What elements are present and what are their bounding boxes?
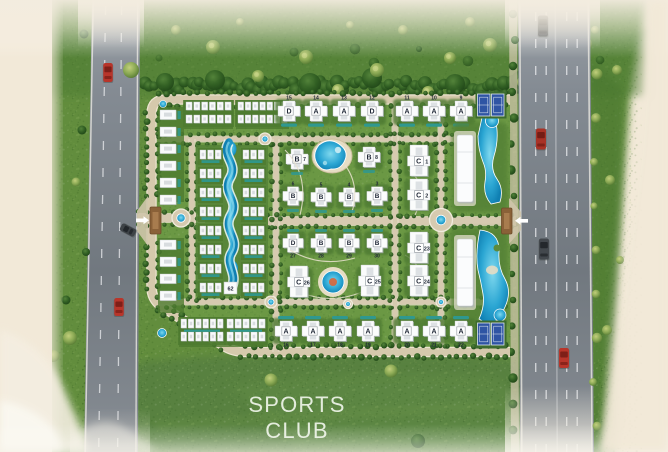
svg-text:11: 11 [404,96,410,102]
svg-text:B: B [347,240,352,247]
svg-text:9: 9 [460,96,463,102]
svg-text:B: B [375,240,380,247]
svg-text:A: A [341,108,346,115]
svg-text:1: 1 [425,159,428,165]
svg-text:5: 5 [320,182,323,188]
svg-text:A: A [365,328,370,335]
svg-text:A: A [337,328,342,335]
svg-text:2: 2 [425,193,428,199]
svg-text:A: A [458,108,463,115]
svg-text:A: A [404,108,409,115]
svg-text:D: D [291,240,296,247]
svg-text:6: 6 [292,181,295,187]
svg-text:26: 26 [304,280,310,286]
svg-text:C: C [367,279,372,286]
svg-text:25: 25 [375,279,381,285]
svg-text:C: C [416,159,421,166]
svg-text:19: 19 [365,343,371,349]
svg-text:21: 21 [431,343,437,349]
svg-text:A: A [283,328,288,335]
svg-text:C: C [296,280,301,287]
svg-text:62: 62 [227,287,233,293]
svg-text:C: C [416,279,421,286]
svg-text:22: 22 [458,343,464,349]
svg-text:A: A [404,328,409,335]
svg-text:D: D [369,108,374,115]
svg-text:24: 24 [424,279,431,285]
svg-text:8: 8 [375,155,378,161]
svg-text:C: C [416,193,421,200]
svg-text:B: B [319,240,324,247]
svg-text:B: B [347,194,352,201]
svg-text:A: A [310,328,315,335]
svg-text:B: B [366,154,371,161]
svg-text:17: 17 [310,343,316,349]
svg-text:A: A [458,328,463,335]
svg-text:A: A [431,108,436,115]
svg-text:B: B [291,193,296,200]
svg-text:30: 30 [374,254,380,260]
svg-text:27: 27 [290,254,296,260]
svg-text:13: 13 [341,96,347,102]
svg-text:C: C [416,246,421,253]
svg-text:SPORTS: SPORTS [248,392,345,417]
svg-text:12: 12 [369,96,375,102]
svg-text:23: 23 [424,246,430,252]
svg-text:16: 16 [283,343,289,349]
svg-text:D: D [286,108,291,115]
svg-text:28: 28 [318,254,324,260]
svg-text:14: 14 [313,96,319,102]
svg-text:10: 10 [431,96,437,102]
svg-text:B: B [319,194,324,201]
svg-text:15: 15 [286,96,292,102]
svg-text:4: 4 [348,182,351,188]
svg-text:A: A [313,108,318,115]
svg-text:18: 18 [337,343,343,349]
svg-text:B: B [375,193,380,200]
svg-text:3: 3 [376,181,379,187]
svg-text:A: A [431,328,436,335]
svg-text:20: 20 [404,343,410,349]
svg-text:7: 7 [303,157,306,163]
